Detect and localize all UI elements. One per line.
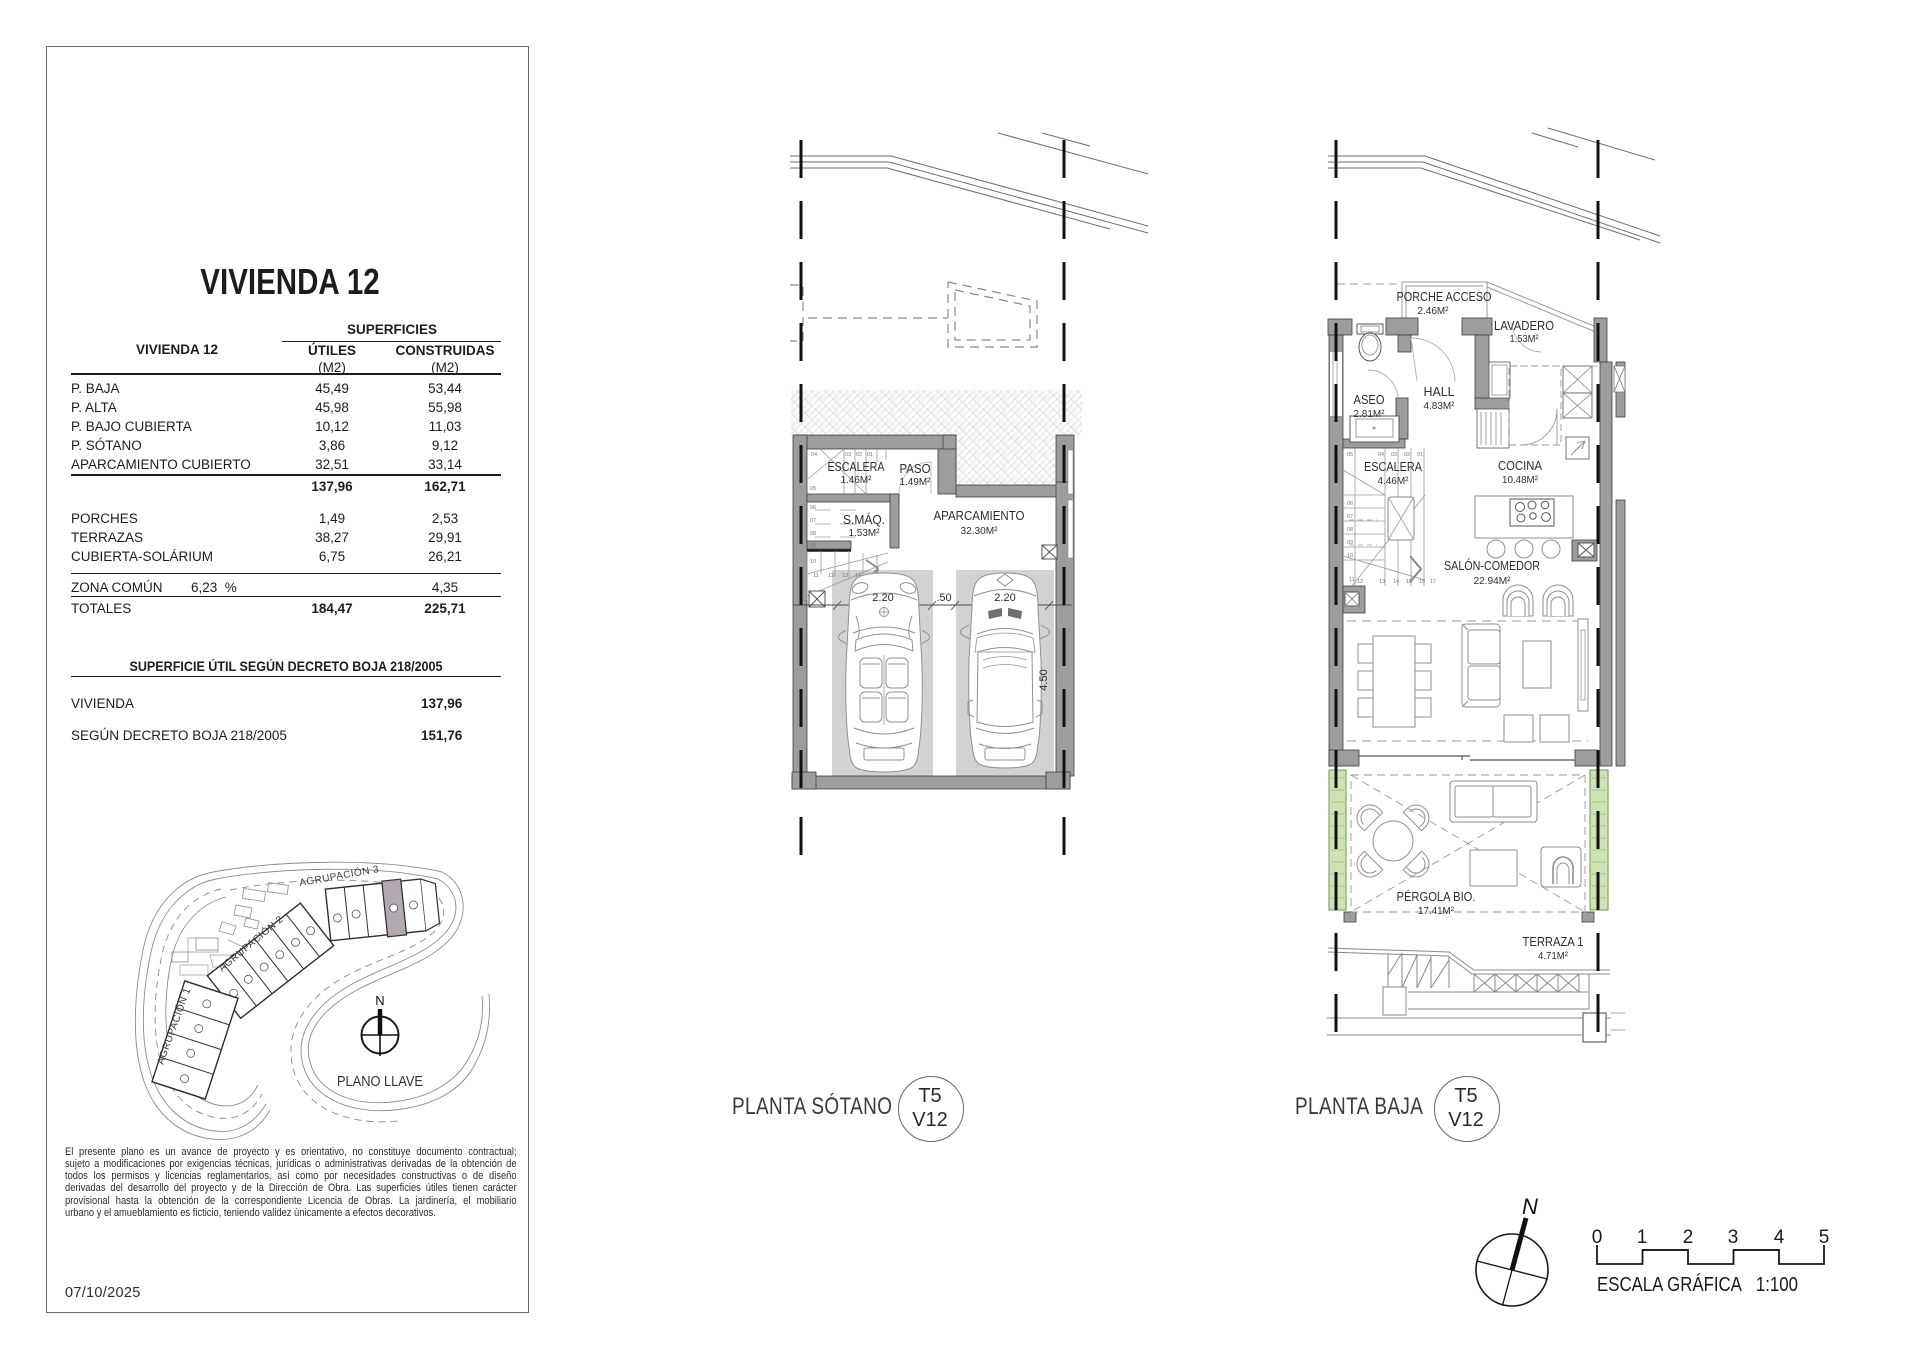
svg-text:ESCALA GRÁFICA 1:100: ESCALA GRÁFICA 1:100 — [1597, 1273, 1798, 1296]
svg-text:1.46M²: 1.46M² — [841, 474, 872, 486]
svg-text:10.48M²: 10.48M² — [1502, 474, 1538, 486]
svg-text:17.41M²: 17.41M² — [1418, 905, 1454, 917]
svg-text:12: 12 — [1357, 579, 1363, 585]
svg-text:04: 04 — [1378, 452, 1384, 458]
svg-text:02: 02 — [1404, 452, 1410, 458]
svg-text:13: 13 — [1379, 579, 1385, 585]
svg-text:1.49M²: 1.49M² — [900, 476, 931, 488]
svg-text:10: 10 — [810, 559, 816, 565]
svg-text:2.20: 2.20 — [994, 592, 1015, 604]
svg-text:N: N — [375, 993, 384, 1008]
svg-text:05: 05 — [1347, 452, 1353, 458]
svg-text:PASO: PASO — [900, 462, 931, 476]
svg-text:10: 10 — [1347, 553, 1353, 559]
svg-text:02: 02 — [856, 452, 862, 458]
svg-text:22.94M²: 22.94M² — [1474, 575, 1511, 587]
svg-text:05: 05 — [810, 486, 816, 492]
svg-text:ASEO: ASEO — [1354, 393, 1385, 407]
svg-text:01: 01 — [867, 452, 873, 458]
svg-text:2.46M²: 2.46M² — [1418, 305, 1449, 317]
svg-text:TERRAZA 1: TERRAZA 1 — [1523, 934, 1584, 949]
svg-text:PÉRGOLA BIO.: PÉRGOLA BIO. — [1397, 889, 1476, 904]
svg-text:06: 06 — [810, 505, 816, 511]
svg-text:3: 3 — [1728, 1227, 1739, 1248]
svg-text:HALL: HALL — [1424, 384, 1455, 399]
svg-text:08: 08 — [810, 531, 816, 537]
svg-text:03: 03 — [1391, 452, 1397, 458]
svg-text:08: 08 — [1347, 527, 1353, 533]
svg-text:2: 2 — [1683, 1227, 1694, 1248]
svg-text:ESCALERA: ESCALERA — [828, 460, 886, 474]
svg-text:14: 14 — [1393, 579, 1399, 585]
svg-text:APARCAMIENTO: APARCAMIENTO — [934, 508, 1025, 523]
svg-text:4.83M²: 4.83M² — [1424, 400, 1455, 412]
svg-text:07: 07 — [1347, 514, 1353, 520]
svg-text:4: 4 — [1774, 1227, 1785, 1248]
svg-text:1.53M²: 1.53M² — [849, 527, 880, 539]
svg-text:2.81M²: 2.81M² — [1354, 408, 1385, 420]
svg-text:LAVADERO: LAVADERO — [1494, 318, 1554, 333]
svg-text:.50: .50 — [936, 592, 951, 604]
svg-text:COCINA: COCINA — [1498, 458, 1542, 473]
svg-text:16: 16 — [1419, 579, 1425, 585]
svg-text:PORCHE ACCESO: PORCHE ACCESO — [1397, 289, 1492, 304]
svg-text:03: 03 — [845, 452, 851, 458]
svg-text:0: 0 — [1592, 1227, 1603, 1248]
svg-text:1.53M²: 1.53M² — [1510, 333, 1539, 345]
svg-text:ESCALERA: ESCALERA — [1364, 460, 1423, 474]
svg-text:N: N — [1522, 1194, 1538, 1219]
svg-text:SALÓN-COMEDOR: SALÓN-COMEDOR — [1444, 558, 1540, 573]
svg-text:S.MÁQ.: S.MÁQ. — [843, 512, 885, 527]
svg-text:4.46M²: 4.46M² — [1378, 475, 1409, 487]
svg-text:15: 15 — [1406, 579, 1412, 585]
svg-text:09: 09 — [810, 543, 816, 549]
svg-text:11: 11 — [1349, 577, 1355, 583]
svg-text:11: 11 — [813, 573, 819, 579]
svg-text:09: 09 — [1347, 540, 1353, 546]
svg-text:2.20: 2.20 — [872, 592, 893, 604]
svg-text:1: 1 — [1637, 1227, 1648, 1248]
svg-text:12: 12 — [828, 573, 834, 579]
svg-text:32.30M²: 32.30M² — [961, 525, 998, 537]
svg-text:17: 17 — [1430, 579, 1436, 585]
svg-text:14: 14 — [855, 573, 861, 579]
svg-text:4.71M²: 4.71M² — [1538, 950, 1568, 962]
svg-text:07: 07 — [810, 518, 816, 524]
svg-text:4.50: 4.50 — [1038, 669, 1050, 690]
svg-text:06: 06 — [1347, 501, 1353, 507]
svg-text:13: 13 — [842, 573, 848, 579]
svg-text:PLANO LLAVE: PLANO LLAVE — [337, 1074, 423, 1090]
svg-text:04: 04 — [811, 452, 817, 458]
svg-text:01: 01 — [1417, 452, 1423, 458]
svg-text:5: 5 — [1819, 1227, 1830, 1248]
